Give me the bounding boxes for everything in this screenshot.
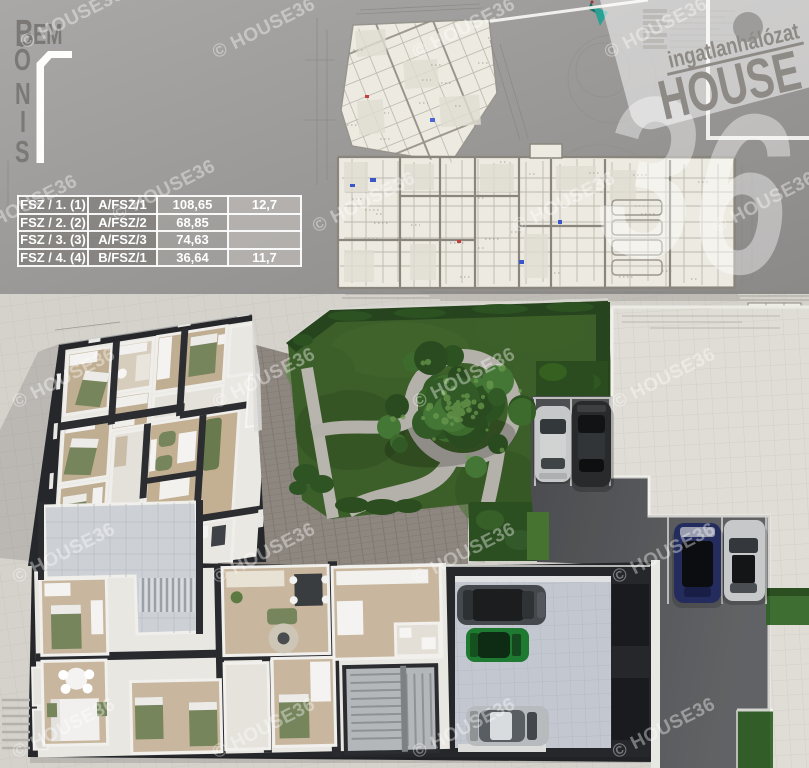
svg-text:S: S [15, 134, 29, 169]
